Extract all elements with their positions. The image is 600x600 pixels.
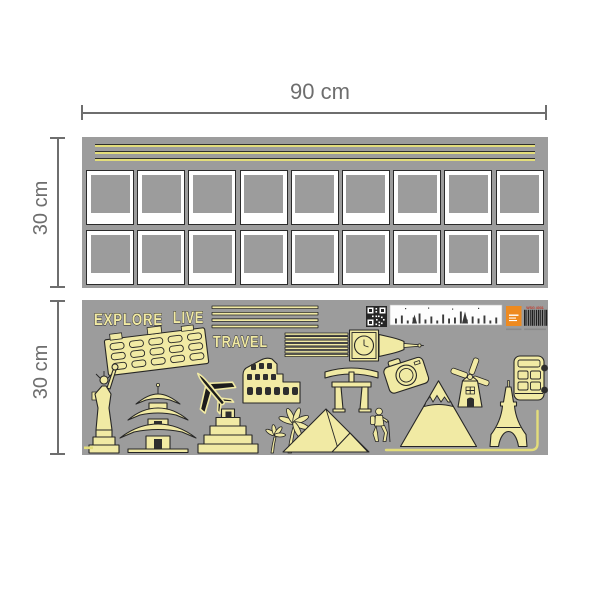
polaroid-frame — [393, 170, 441, 225]
city-skyline-label — [390, 305, 502, 325]
bus-icon — [514, 356, 548, 400]
stripe-line — [95, 151, 535, 154]
photo-area — [295, 235, 334, 273]
mayan-pyramid-icon — [198, 409, 258, 453]
photo-area — [295, 175, 334, 213]
photo-area — [398, 235, 437, 273]
polaroid-frame — [86, 230, 134, 285]
polaroid-frame — [444, 230, 492, 285]
photo-area — [346, 175, 385, 213]
photo-area — [500, 175, 539, 213]
polaroid-frame — [240, 170, 288, 225]
torii-gate-icon — [325, 368, 378, 412]
polaroid-frame — [496, 170, 544, 225]
polaroid-frame — [291, 170, 339, 225]
width-dimension-label: 90 cm — [260, 79, 380, 105]
dimension-end-cap — [50, 286, 65, 288]
photo-area — [449, 175, 488, 213]
stickers-svg: EXPLORE LIVE TRAVEL — [82, 300, 548, 455]
photo-area — [193, 175, 232, 213]
photo-area — [142, 175, 181, 213]
polaroid-frame — [342, 230, 390, 285]
product-code-text: WSG 4031 — [526, 306, 544, 310]
height-dimension-label-bottom: 30 cm — [30, 332, 54, 412]
photo-area — [91, 235, 130, 273]
polaroid-frame — [86, 170, 134, 225]
polaroid-frame — [240, 230, 288, 285]
dimension-end-cap — [81, 105, 83, 120]
stripe-line — [95, 158, 535, 161]
explore-word: EXPLORE — [94, 311, 163, 329]
dimension-end-cap — [545, 105, 547, 120]
qr-code-icon — [366, 306, 387, 327]
big-ben-icon — [285, 330, 424, 361]
barcode: WSG 4031 — [524, 306, 548, 330]
statue-of-liberty-icon — [89, 364, 119, 453]
polaroid-frame — [444, 170, 492, 225]
stripe-lines-icon — [212, 306, 318, 328]
photo-area — [244, 235, 283, 273]
polaroid-frame — [137, 230, 185, 285]
frames-grid — [86, 170, 544, 285]
height-dimension-line-top — [57, 137, 59, 288]
photo-area — [500, 235, 539, 273]
polaroid-frame — [342, 170, 390, 225]
border-line-mark — [84, 447, 93, 450]
stripe-line — [95, 144, 535, 147]
photo-frames-sheet — [82, 137, 548, 288]
photo-area — [398, 175, 437, 213]
dimension-end-cap — [50, 300, 65, 302]
photo-area — [91, 175, 130, 213]
polaroid-frame — [137, 170, 185, 225]
barcode-bars — [524, 310, 548, 326]
photo-area — [346, 235, 385, 273]
product-image: 90 cm 30 cm 30 cm EXPLORE LIVE TRAVEL — [0, 0, 600, 600]
height-dimension-label-top: 30 cm — [30, 168, 54, 248]
brand-logo — [506, 306, 522, 330]
travel-word: TRAVEL — [213, 334, 268, 351]
polaroid-frame — [188, 170, 236, 225]
hiker-icon — [371, 408, 391, 442]
dimension-end-cap — [50, 137, 65, 139]
photo-area — [142, 235, 181, 273]
windmill-icon — [450, 357, 490, 407]
height-dimension-line-bottom — [57, 300, 59, 455]
camera-icon — [381, 351, 430, 394]
width-dimension-line — [82, 112, 546, 114]
photo-area — [193, 235, 232, 273]
polaroid-frame — [496, 230, 544, 285]
polaroid-frame — [393, 230, 441, 285]
colosseum-icon — [243, 358, 300, 403]
live-word: LIVE — [173, 309, 204, 327]
stripe-lines-sticker — [95, 144, 535, 161]
pagoda-icon — [120, 383, 196, 452]
dimension-end-cap — [50, 453, 65, 455]
photo-area — [449, 235, 488, 273]
polaroid-frame — [291, 230, 339, 285]
photo-area — [244, 175, 283, 213]
polaroid-frame — [188, 230, 236, 285]
travel-stickers-sheet: EXPLORE LIVE TRAVEL — [82, 300, 548, 455]
